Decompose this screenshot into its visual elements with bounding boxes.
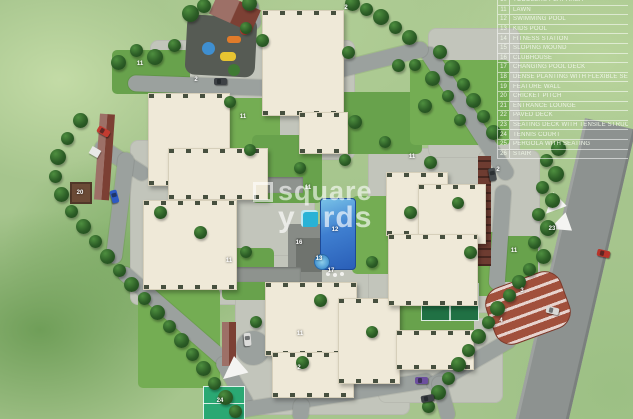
- legend-item: 17CHANGING POOL DECK: [497, 63, 628, 73]
- plan-marker: 11: [137, 61, 143, 67]
- legend-item-number: 18: [497, 73, 510, 82]
- legend-item-number: 25: [497, 140, 510, 149]
- legend-item-number: 23: [497, 121, 510, 130]
- plan-marker: 16: [296, 240, 303, 246]
- plan-marker: 2: [344, 5, 347, 11]
- watermark-text: rds: [323, 201, 373, 235]
- legend-item-label: KIDS POOL: [510, 26, 547, 32]
- legend-item-label: ENTRANCE LOUNGE: [510, 103, 576, 109]
- legend-item: 19FEATURE WALL: [497, 82, 628, 92]
- plan-marker: 20: [77, 190, 84, 196]
- legend-item: 25PERGOLA WITH SEATING: [497, 140, 628, 150]
- plan-marker: 11: [297, 331, 303, 337]
- legend-item-number: 14: [497, 34, 510, 43]
- legend-item-number: 22: [497, 111, 510, 120]
- legend-item-number: 10: [497, 0, 510, 5]
- plan-marker: 2: [194, 77, 197, 83]
- plan-marker: 24: [217, 398, 224, 404]
- plan-marker: 11: [240, 114, 246, 120]
- legend-item-label: SWIMMING POOL: [510, 16, 566, 22]
- plan-marker: 11: [511, 248, 517, 254]
- plan-marker: 3: [520, 288, 523, 294]
- legend-item-label: CRICKET PITCH: [510, 93, 562, 99]
- plan-marker: 11: [226, 258, 232, 264]
- legend-item-label: TODDLERS PLAY AREA: [510, 0, 583, 3]
- legend-item: 13KIDS POOL: [497, 25, 628, 35]
- legend-item: 20CRICKET PITCH: [497, 92, 628, 102]
- legend-item-number: 19: [497, 82, 510, 91]
- legend-item-number: 21: [497, 102, 510, 111]
- legend-item: 11LAWN: [497, 6, 628, 16]
- legend-item: 22PAVED DECK: [497, 111, 628, 121]
- legend-item-label: STAIR: [510, 151, 531, 157]
- squareyards-a-icon: [301, 210, 318, 227]
- legend-item: 16CLUBHOUSE: [497, 54, 628, 64]
- legend-item-number: 24: [497, 130, 510, 139]
- plan-marker: 11: [409, 154, 415, 160]
- legend-item-label: SEATING DECK WITH TENSILE STRUCTURE: [510, 122, 628, 128]
- legend-item: 24TENNIS COURT: [497, 130, 628, 140]
- legend-item-label: PAVED DECK: [510, 112, 553, 118]
- legend-item: 15SLOPING MOUND: [497, 44, 628, 54]
- legend-item: 26STAIR: [497, 150, 628, 160]
- legend-item-number: 12: [497, 15, 510, 24]
- legend-item-label: LAWN: [510, 7, 531, 13]
- plan-marker: 2: [297, 365, 300, 371]
- legend-item: 14FITNESS STATION: [497, 34, 628, 44]
- site-master-plan: 2222111111111111113420232412131617 squar…: [0, 0, 633, 419]
- plan-marker: 17: [328, 268, 335, 274]
- legend-item-label: SLOPING MOUND: [510, 45, 567, 51]
- legend-item-number: 11: [497, 6, 510, 15]
- legend-item-label: CHANGING POOL DECK: [510, 64, 585, 70]
- legend-item-label: FEATURE WALL: [510, 84, 561, 90]
- legend-item: 23SEATING DECK WITH TENSILE STRUCTURE: [497, 121, 628, 131]
- watermark-text: y: [278, 201, 296, 235]
- legend-panel: 10TODDLERS PLAY AREA11LAWN12SWIMMING POO…: [497, 0, 628, 159]
- legend-item-label: DENSE PLANTING WITH FLEXIBLE SEATING: [510, 74, 628, 80]
- legend-item: 12SWIMMING POOL: [497, 15, 628, 25]
- plan-marker: 2: [496, 167, 499, 173]
- legend-item-number: 15: [497, 44, 510, 53]
- legend-item-label: PERGOLA WITH SEATING: [510, 141, 590, 147]
- plan-marker: 4: [499, 318, 502, 324]
- legend-item-number: 20: [497, 92, 510, 101]
- legend-item-label: TENNIS COURT: [510, 132, 560, 138]
- legend-item-number: 26: [497, 150, 510, 159]
- legend-item-number: 16: [497, 54, 510, 63]
- squareyards-logo-icon: [253, 182, 273, 202]
- legend-item-label: FITNESS STATION: [510, 36, 568, 42]
- legend-item: 18DENSE PLANTING WITH FLEXIBLE SEATING: [497, 73, 628, 83]
- legend-item: 21ENTRANCE LOUNGE: [497, 102, 628, 112]
- legend-item-label: CLUBHOUSE: [510, 55, 552, 61]
- watermark-line2: y rds: [278, 201, 372, 235]
- plan-marker: 23: [549, 226, 556, 232]
- plan-marker: 13: [316, 256, 323, 262]
- legend-item-number: 13: [497, 25, 510, 34]
- legend-item-number: 17: [497, 63, 510, 72]
